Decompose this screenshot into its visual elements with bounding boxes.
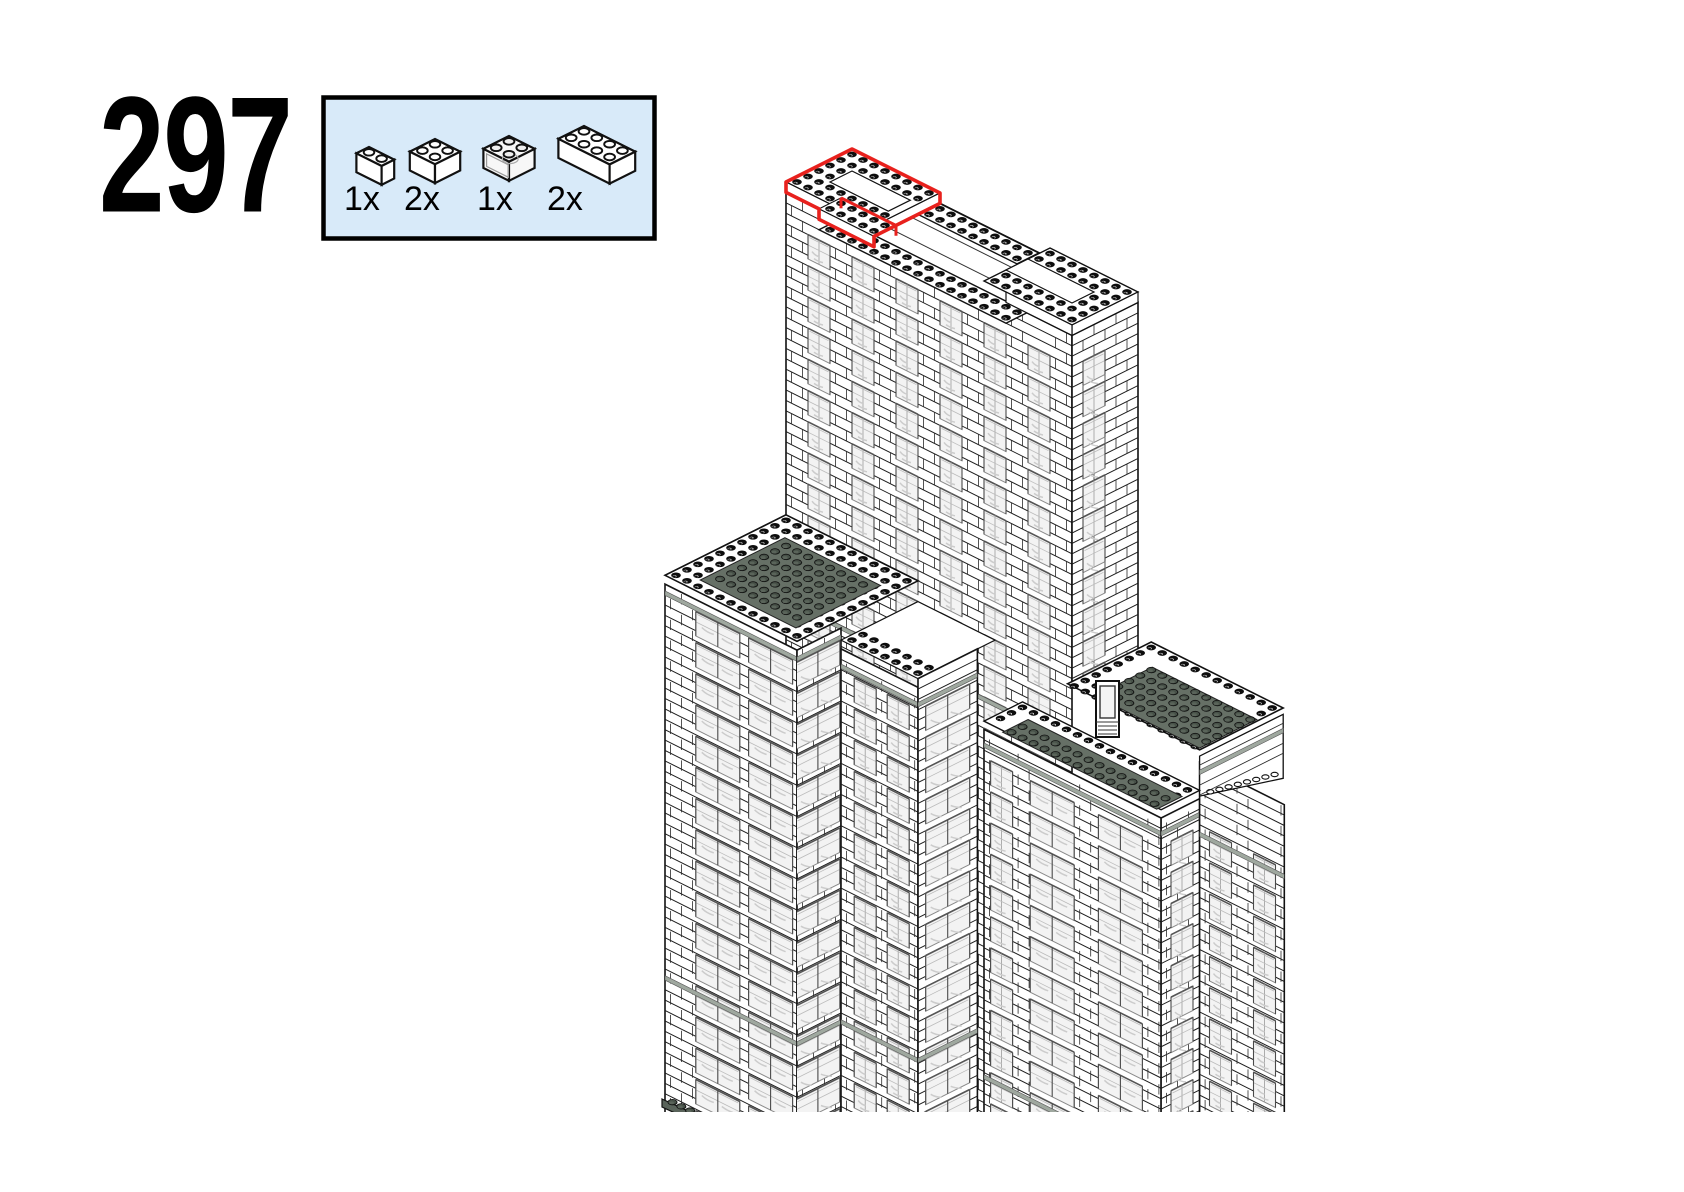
svg-text:2x: 2x (547, 180, 583, 218)
svg-text:1x: 1x (344, 180, 380, 218)
svg-text:297: 297 (99, 63, 292, 247)
svg-text:2x: 2x (404, 180, 440, 218)
svg-text:1x: 1x (477, 180, 513, 218)
